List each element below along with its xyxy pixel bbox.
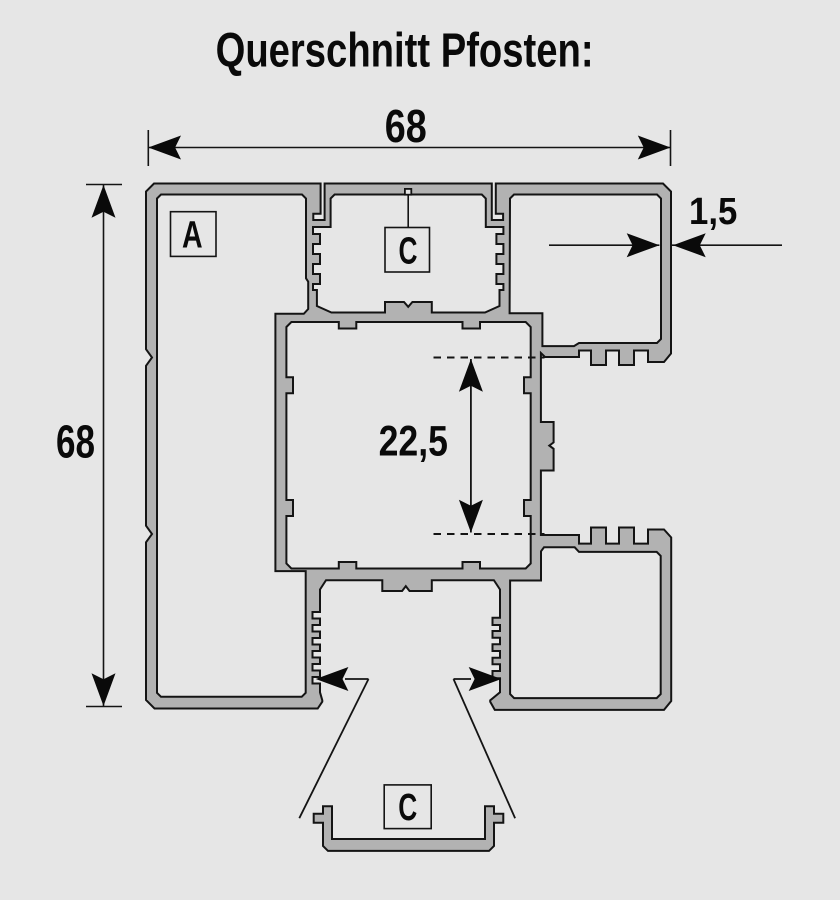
svg-text:68: 68	[385, 100, 427, 152]
svg-text:22,5: 22,5	[379, 418, 448, 466]
svg-text:C: C	[398, 787, 417, 829]
svg-text:1,5: 1,5	[689, 191, 737, 233]
svg-text:Querschnitt Pfosten:: Querschnitt Pfosten:	[216, 24, 594, 77]
svg-text:A: A	[182, 215, 203, 257]
svg-text:68: 68	[56, 416, 95, 468]
svg-text:C: C	[399, 231, 418, 273]
